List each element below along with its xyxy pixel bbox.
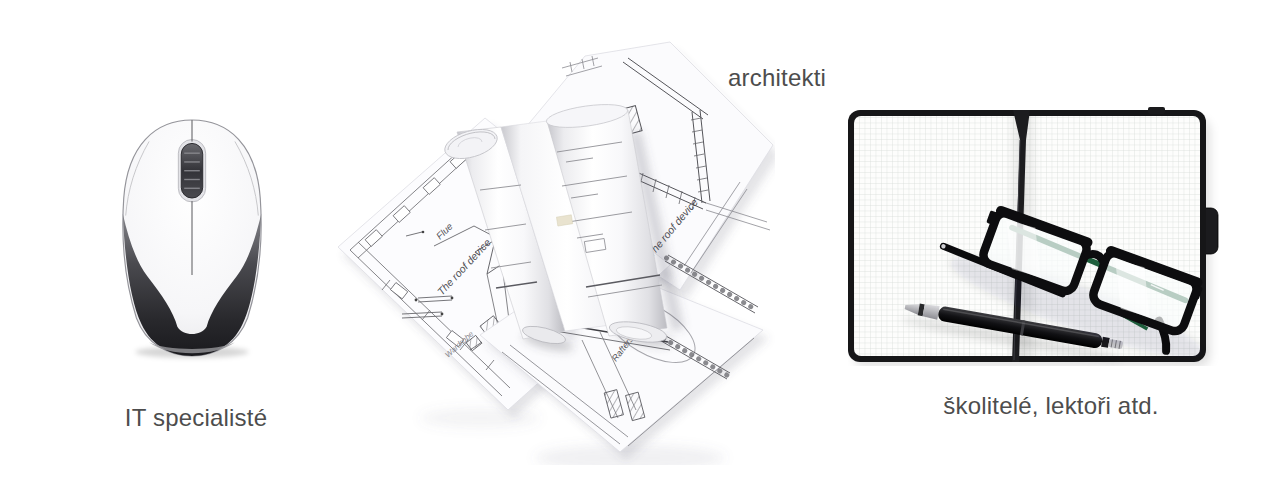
- cover-tab: [1148, 107, 1165, 114]
- mouse-photo: [114, 112, 270, 364]
- caption-architects: architekti: [728, 64, 826, 93]
- notebook-photo: [848, 106, 1220, 366]
- caption-it-specialists: IT specialisté: [96, 404, 296, 433]
- mouse-illustration: [114, 112, 270, 364]
- notebook-illustration: [848, 106, 1220, 366]
- page: IT specialisté: [0, 0, 1280, 489]
- blueprints-illustration: Flue The roof device Wardrobe: [330, 40, 775, 465]
- sheets-shadow2: [420, 408, 540, 428]
- blueprints-photo: Flue The roof device Wardrobe: [330, 40, 775, 465]
- caption-trainers: školitelé, lektoři atd.: [930, 392, 1172, 421]
